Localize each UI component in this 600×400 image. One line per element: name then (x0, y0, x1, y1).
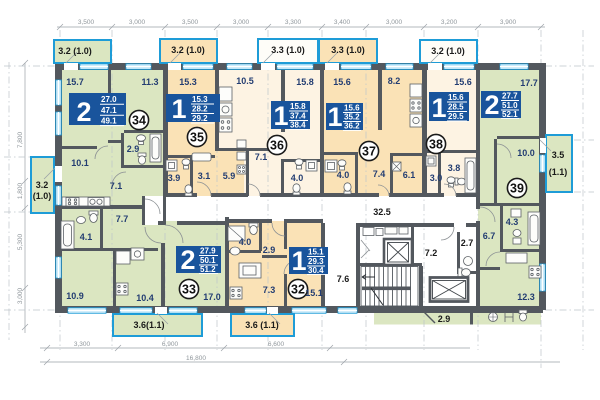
svg-text:29.2: 29.2 (192, 114, 208, 123)
svg-text:3,500: 3,500 (182, 19, 199, 26)
svg-text:1: 1 (291, 246, 306, 276)
svg-text:7.1: 7.1 (255, 152, 268, 162)
svg-text:52.1: 52.1 (502, 110, 518, 119)
svg-text:3.2: 3.2 (36, 180, 49, 190)
svg-text:49.1: 49.1 (101, 117, 117, 126)
svg-text:3,000: 3,000 (129, 19, 146, 26)
svg-text:6,900: 6,900 (162, 341, 179, 348)
svg-text:10.9: 10.9 (66, 291, 84, 301)
svg-text:2.7: 2.7 (461, 238, 474, 248)
svg-text:3.9: 3.9 (168, 173, 181, 183)
svg-text:51.0: 51.0 (502, 101, 518, 110)
svg-text:1: 1 (327, 102, 342, 132)
svg-text:2.9: 2.9 (263, 245, 276, 255)
svg-text:15.7: 15.7 (66, 77, 84, 87)
svg-text:4.1: 4.1 (80, 232, 93, 242)
svg-text:8.2: 8.2 (388, 76, 401, 86)
svg-text:32: 32 (291, 282, 305, 296)
svg-text:3,500: 3,500 (78, 19, 95, 26)
svg-text:3.2 (1.0): 3.2 (1.0) (431, 46, 465, 56)
svg-text:(1.0): (1.0) (33, 191, 52, 201)
svg-text:3,300: 3,300 (74, 341, 91, 348)
svg-text:29.3: 29.3 (308, 257, 324, 266)
svg-text:3.3 (1.0): 3.3 (1.0) (331, 45, 365, 55)
svg-text:29.5: 29.5 (448, 112, 464, 121)
svg-text:17.0: 17.0 (203, 292, 221, 302)
svg-text:3,300: 3,300 (285, 19, 302, 26)
svg-text:2: 2 (180, 245, 195, 275)
svg-text:28.5: 28.5 (448, 103, 464, 112)
svg-text:38: 38 (429, 137, 443, 151)
svg-text:5,300: 5,300 (17, 233, 24, 250)
svg-text:15.1: 15.1 (305, 288, 323, 298)
svg-text:2.9: 2.9 (127, 144, 140, 154)
svg-text:34: 34 (132, 113, 146, 127)
svg-text:10.4: 10.4 (136, 293, 154, 303)
svg-text:3.2 (1.0): 3.2 (1.0) (171, 45, 205, 55)
svg-text:1: 1 (273, 101, 288, 131)
svg-text:16,800: 16,800 (186, 355, 206, 362)
svg-text:7.7: 7.7 (116, 214, 129, 224)
svg-text:33: 33 (182, 282, 196, 296)
svg-text:3.1: 3.1 (198, 171, 211, 181)
svg-text:15.3: 15.3 (192, 95, 208, 104)
svg-text:17.7: 17.7 (520, 78, 538, 88)
svg-text:7.1: 7.1 (110, 181, 123, 191)
svg-text:7.4: 7.4 (373, 169, 386, 179)
svg-text:3.6(1.1): 3.6(1.1) (133, 320, 164, 330)
svg-text:3.6 (1.1): 3.6 (1.1) (245, 320, 279, 330)
svg-text:51.2: 51.2 (200, 265, 216, 274)
svg-text:11.3: 11.3 (141, 77, 158, 87)
svg-text:3,000: 3,000 (233, 19, 250, 26)
svg-text:15.6: 15.6 (344, 104, 360, 113)
svg-text:15.6: 15.6 (448, 93, 464, 102)
svg-text:37.4: 37.4 (290, 112, 306, 121)
svg-text:15.8: 15.8 (296, 77, 314, 87)
svg-text:2.9: 2.9 (438, 314, 451, 324)
svg-text:7.3: 7.3 (263, 285, 276, 295)
svg-text:1: 1 (431, 93, 446, 123)
svg-text:3.8: 3.8 (448, 163, 461, 173)
svg-text:3,000: 3,000 (17, 287, 24, 304)
svg-text:10.5: 10.5 (236, 76, 254, 86)
svg-text:27.7: 27.7 (502, 92, 518, 101)
svg-text:7.2: 7.2 (425, 248, 438, 258)
svg-text:3.3 (1.0): 3.3 (1.0) (271, 45, 305, 55)
svg-text:6.1: 6.1 (403, 170, 416, 180)
svg-text:36.2: 36.2 (344, 122, 360, 131)
svg-text:27.0: 27.0 (101, 95, 117, 104)
svg-text:3,200: 3,200 (441, 19, 458, 26)
svg-text:35.2: 35.2 (344, 113, 360, 122)
svg-text:38.4: 38.4 (290, 121, 306, 130)
svg-text:15.6: 15.6 (333, 77, 351, 87)
svg-text:47.1: 47.1 (101, 106, 117, 115)
svg-text:1,800: 1,800 (17, 182, 24, 199)
svg-text:50.1: 50.1 (200, 256, 216, 265)
svg-text:12.3: 12.3 (517, 292, 535, 302)
svg-text:6,600: 6,600 (268, 341, 285, 348)
svg-text:6.7: 6.7 (483, 231, 496, 241)
svg-text:4.3: 4.3 (506, 217, 519, 227)
svg-text:3,400: 3,400 (334, 19, 351, 26)
svg-text:30.4: 30.4 (308, 266, 324, 275)
svg-text:32.5: 32.5 (373, 207, 391, 217)
svg-text:10.1: 10.1 (71, 158, 89, 168)
svg-text:(1.1): (1.1) (549, 167, 568, 177)
svg-text:4.0: 4.0 (291, 173, 304, 183)
svg-text:35: 35 (190, 130, 204, 144)
svg-text:7,800: 7,800 (17, 131, 24, 148)
svg-text:3.5: 3.5 (552, 150, 565, 160)
svg-text:2: 2 (484, 90, 499, 120)
svg-text:10.0: 10.0 (517, 148, 535, 158)
svg-text:15.6: 15.6 (454, 77, 472, 87)
svg-text:27.9: 27.9 (200, 247, 216, 256)
svg-text:4.0: 4.0 (337, 170, 350, 180)
svg-text:3,900: 3,900 (500, 19, 517, 26)
svg-text:15.8: 15.8 (290, 102, 306, 111)
svg-text:7.6: 7.6 (337, 274, 350, 284)
svg-text:28.2: 28.2 (192, 105, 208, 114)
svg-text:3,000: 3,000 (386, 19, 403, 26)
svg-text:4.0: 4.0 (239, 237, 252, 247)
svg-text:5.9: 5.9 (223, 171, 236, 181)
svg-text:3.0: 3.0 (430, 173, 443, 183)
svg-text:1: 1 (171, 94, 186, 124)
svg-text:37: 37 (362, 144, 376, 158)
svg-text:3.2 (1.0): 3.2 (1.0) (58, 46, 92, 56)
svg-text:36: 36 (270, 138, 284, 152)
svg-text:15.3: 15.3 (179, 77, 197, 87)
svg-text:2: 2 (76, 97, 91, 127)
svg-text:39: 39 (510, 181, 524, 195)
svg-text:15.1: 15.1 (308, 248, 324, 257)
